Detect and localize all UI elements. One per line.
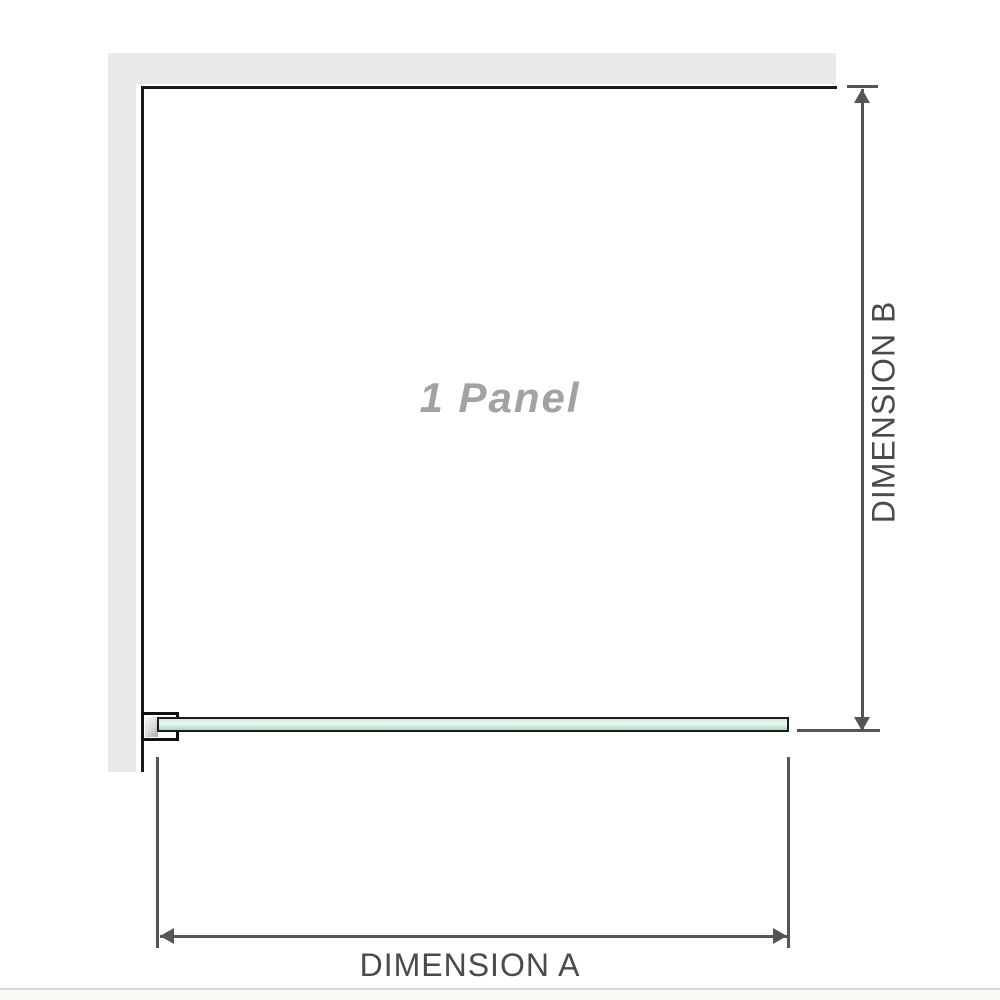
shower-panel-diagram: 1 Panel DIMENSION B DIMENSION A — [0, 0, 1000, 1000]
wall-top-band — [108, 53, 836, 84]
dimension-b-line — [861, 89, 864, 731]
panel-border-top — [142, 86, 837, 89]
dimension-a-left-extension — [156, 757, 159, 948]
dimension-a-right-extension — [787, 757, 790, 948]
dimension-b-label: DIMENSION B — [866, 301, 903, 524]
dimension-a-line — [160, 935, 787, 938]
glass-panel-plan — [157, 717, 789, 732]
dimension-a-label: DIMENSION A — [360, 947, 581, 984]
dimension-b-bottom-tick — [797, 729, 880, 732]
bottom-margin — [0, 990, 1000, 1000]
dimension-b-top-tick — [847, 85, 878, 88]
panel-count-label: 1 Panel — [419, 374, 580, 422]
wall-left-band — [108, 53, 136, 772]
arrow-up-icon — [854, 89, 870, 103]
panel-border-left — [141, 86, 144, 772]
arrow-left-icon — [160, 928, 174, 944]
arrow-right-icon — [773, 928, 787, 944]
